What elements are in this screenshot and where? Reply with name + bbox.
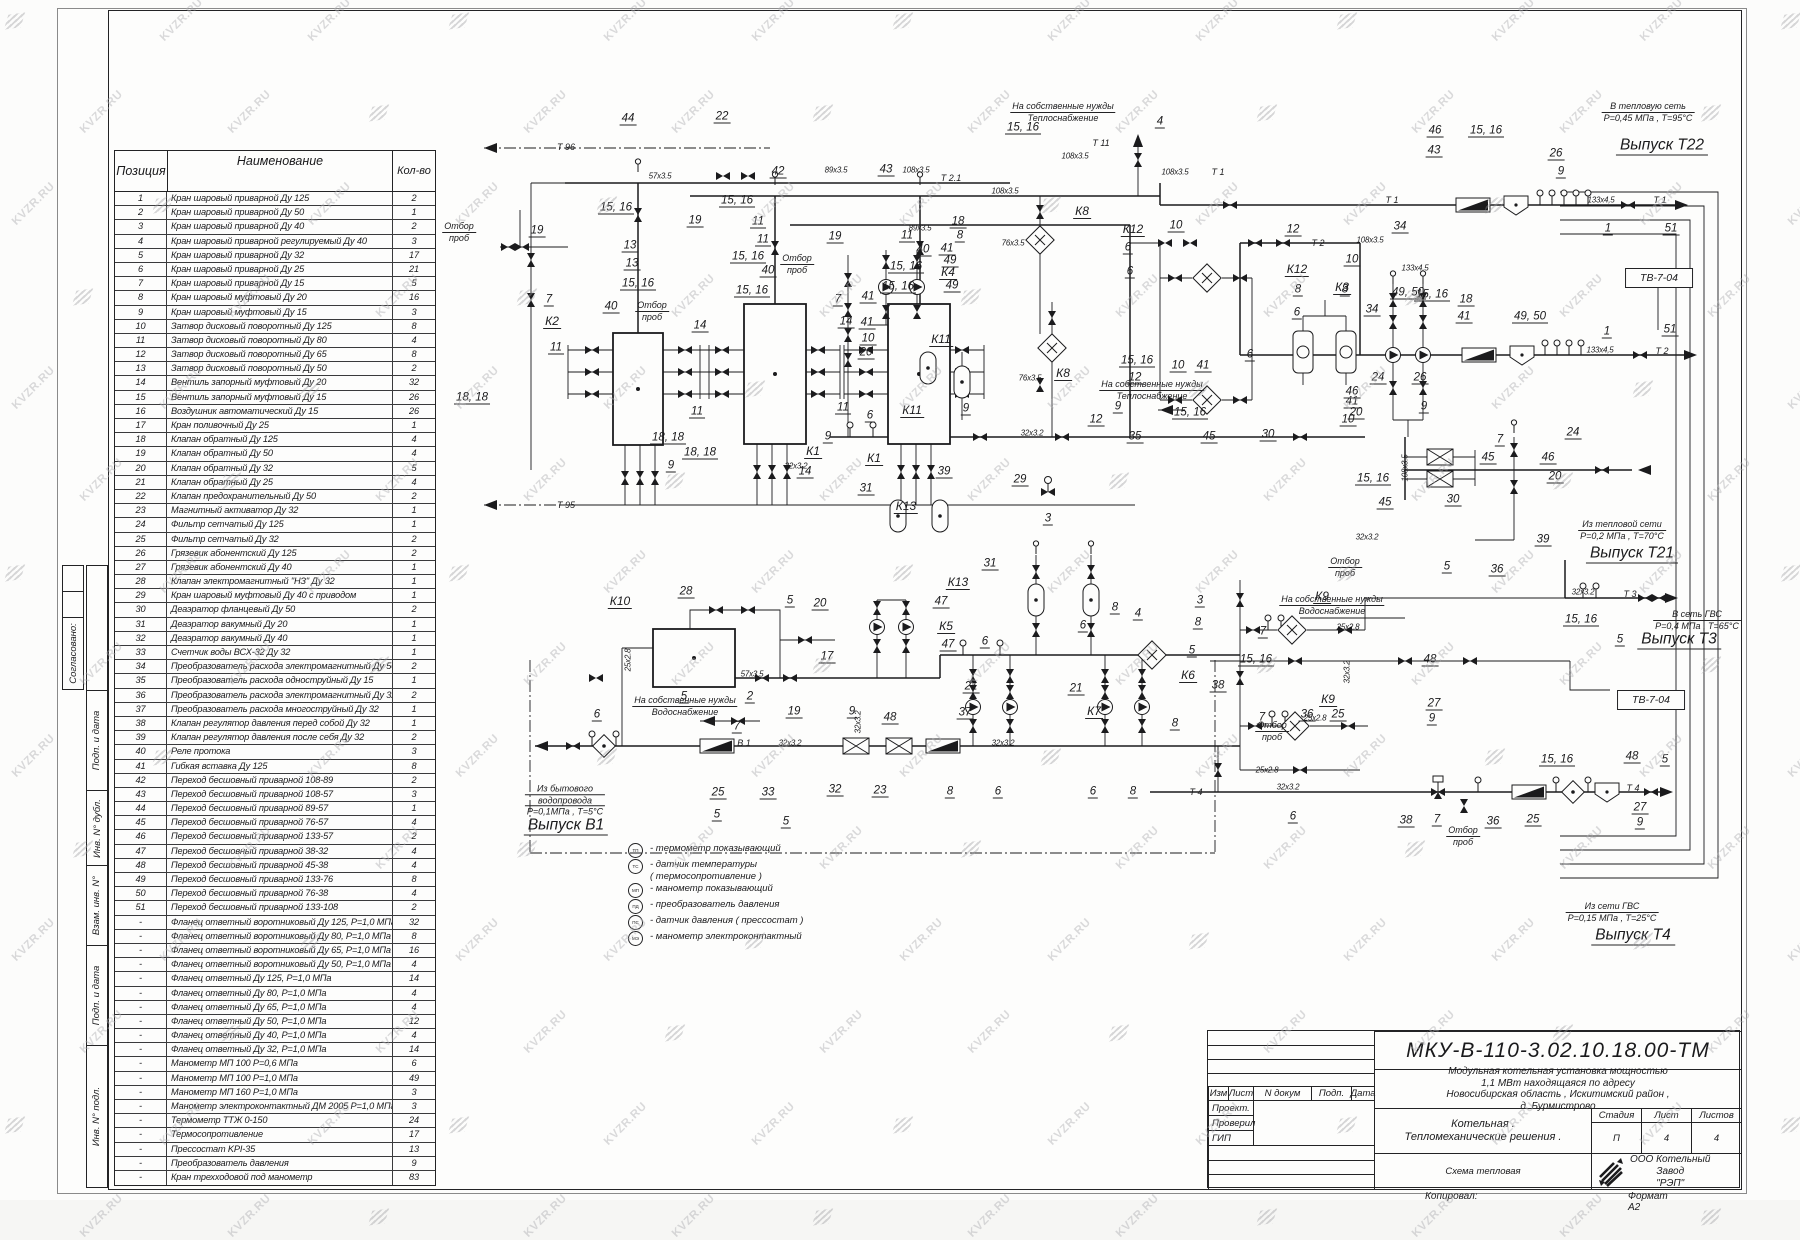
cap-symbol: [890, 500, 906, 532]
table-cell-qty: 16: [393, 291, 435, 304]
table-cell-pos: -: [115, 972, 167, 985]
table-cell-name: Клапан обратный Ду 50: [167, 447, 393, 460]
table-cell-pos: 28: [115, 575, 167, 588]
col-izm: Изм: [1208, 1086, 1228, 1100]
table-cell-name: Клапан регулятор давления перед собой Ду…: [167, 717, 393, 730]
table-cell-name: Переход бесшовный приварной 133-76: [167, 873, 393, 886]
table-row: 20Клапан обратный Ду 325: [115, 462, 435, 476]
parts-table: Позиция Наименование Кол-во 1Кран шаровы…: [114, 150, 436, 1186]
table-cell-pos: 26: [115, 547, 167, 560]
vlv-symbol: [678, 390, 692, 398]
vlv-symbol: [1419, 293, 1427, 307]
inst-symbol: [997, 640, 1003, 655]
inst-symbol: [589, 731, 595, 746]
vlv-symbol: [716, 172, 730, 180]
vlv-symbol: [1341, 722, 1355, 730]
table-cell-pos: 34: [115, 660, 167, 673]
table-row: 21Клапан обратный Ду 254: [115, 476, 435, 490]
table-cell-name: Кран шаровый приварной Ду 25: [167, 263, 393, 276]
inst-symbol: [1580, 583, 1586, 598]
table-row: -Термосопротивление17: [115, 1128, 435, 1142]
table-row: -Фланец ответный воротниковый Ду 125, Р=…: [115, 916, 435, 930]
vlv-symbol: [844, 303, 852, 317]
table-cell-qty: 3: [393, 235, 435, 248]
table-cell-pos: 22: [115, 490, 167, 503]
table-cell-pos: 9: [115, 306, 167, 319]
vlv-symbol: [585, 346, 599, 354]
vlv-symbol: [755, 674, 769, 682]
legend-text: - манометр показывающий: [650, 883, 773, 895]
table-cell-qty: 2: [393, 830, 435, 843]
table-cell-qty: 3: [393, 1100, 435, 1113]
table-cell-qty: 4: [393, 1029, 435, 1042]
vlv-symbol: [1006, 669, 1014, 683]
table-cell-qty: 3: [393, 306, 435, 319]
sidebar-agreed: Согласовано:: [62, 617, 84, 690]
table-cell-name: Переход бесшовный приварной 76-38: [167, 887, 393, 900]
company-name: ООО Котельный Завод "РЭП": [1630, 1154, 1710, 1190]
rectX-symbol: [843, 738, 869, 754]
table-cell-qty: 6: [393, 1057, 435, 1070]
table-cell-qty: 4: [393, 958, 435, 971]
table-cell-name: Фланец ответный Ду 32, Р=1,0 МПа: [167, 1043, 393, 1056]
table-cell-pos: 10: [115, 320, 167, 333]
watermark-logo-icon: [368, 1208, 389, 1225]
table-cell-name: Кран шаровый муфтовый Ду 40 с приводом: [167, 589, 393, 602]
table-cell-pos: -: [115, 944, 167, 957]
vlv-symbol: [589, 674, 603, 682]
table-cell-qty: 2: [393, 689, 435, 702]
arr-symbol: [1684, 350, 1697, 360]
secondary-pipes: [500, 140, 1718, 878]
table-cell-qty: 4: [393, 433, 435, 446]
table-cell-name: Затвор дисковый поворотный Ду 65: [167, 348, 393, 361]
table-row: 48Переход бесшовный приварной 45-384: [115, 859, 435, 873]
table-cell-name: Затвор дисковый поворотный Ду 50: [167, 362, 393, 375]
vlv-symbol: [501, 243, 515, 251]
vlv-symbol: [969, 719, 977, 733]
sheets-label: Листов: [1691, 1108, 1741, 1122]
legend-text: - датчик давления ( прессостат ): [650, 915, 803, 927]
table-cell-name: Грязевик абонентский Ду 40: [167, 561, 393, 574]
legend-item: ТП- термометр показывающий: [628, 843, 803, 858]
pent-symbol: [1510, 346, 1534, 365]
arr-symbol: [702, 716, 715, 726]
table-cell-name: Фильтр сетчатый Ду 125: [167, 518, 393, 531]
header-position: Позиция: [115, 151, 168, 191]
table-cell-name: Деаэратор фланцевый Ду 50: [167, 603, 393, 616]
table-cell-pos: 47: [115, 845, 167, 858]
vlv-symbol: [1032, 623, 1040, 637]
inst-symbol: [1566, 340, 1572, 355]
table-cell-qty: 2: [393, 901, 435, 914]
table-cell-name: Гибкая вставка Ду 125: [167, 760, 393, 773]
inst-symbol: [1549, 190, 1555, 205]
vlv-symbol: [811, 390, 825, 398]
table-cell-pos: 6: [115, 263, 167, 276]
table-cell-name: Фланец ответный Ду 40, Р=1,0 МПа: [167, 1029, 393, 1042]
table-cell-pos: -: [115, 1015, 167, 1028]
vlv-symbol: [1652, 594, 1666, 602]
table-cell-qty: 2: [393, 774, 435, 787]
tank12-symbol: [1293, 331, 1313, 373]
cap-symbol: [1028, 584, 1044, 616]
inst-symbol: [1554, 340, 1560, 355]
vlv-symbol: [715, 346, 729, 354]
vent-symbol: [1511, 420, 1516, 433]
table-cell-qty: 4: [393, 887, 435, 900]
table-cell-pos: 13: [115, 362, 167, 375]
legend-item: МЭ- манометр электроконтактный: [628, 931, 803, 946]
vent-symbol: [1033, 541, 1038, 554]
role-checked: Проверил: [1208, 1115, 1253, 1130]
vlv-symbol: [1288, 657, 1302, 665]
table-cell-pos: 35: [115, 674, 167, 687]
cap-symbol: [954, 366, 970, 398]
grid-line: [1208, 1160, 1374, 1161]
table-cell-name: Преобразователь расхода одноструйный Ду …: [167, 674, 393, 687]
inst-symbol: [960, 640, 966, 655]
table-cell-name: Манометр электроконтактный ДМ 2005 Р=1,0…: [167, 1100, 393, 1113]
vlv-symbol: [1293, 433, 1307, 441]
table-cell-name: Манометр МП 100 Р=0,6 МПа: [167, 1057, 393, 1070]
table-row: 50Переход бесшовный приварной 76-384: [115, 887, 435, 901]
table-cell-pos: 41: [115, 760, 167, 773]
table-row: 45Переход бесшовный приварной 76-574: [115, 816, 435, 830]
vlv-symbol: [902, 601, 910, 615]
table-cell-pos: 8: [115, 291, 167, 304]
table-cell-pos: 3: [115, 220, 167, 233]
table-cell-pos: 45: [115, 816, 167, 829]
pump-symbol: [1003, 700, 1018, 715]
table-cell-qty: 14: [393, 1043, 435, 1056]
table-cell-pos: 17: [115, 419, 167, 432]
rectX-symbol: [1427, 449, 1453, 465]
hx-symbol: [1193, 386, 1221, 414]
legend-text: - преобразователь давления: [650, 899, 780, 911]
table-cell-name: Фланец ответный Ду 80, Р=1,0 МПа: [167, 987, 393, 1000]
table-cell-name: Кран шаровый приварной Ду 15: [167, 277, 393, 290]
table-cell-pos: 48: [115, 859, 167, 872]
table-cell-name: Преобразователь расхода электромагнитный…: [167, 689, 393, 702]
vlv-symbol: [1248, 239, 1262, 247]
tank12-symbol: [1336, 331, 1356, 373]
table-row: 37Преобразователь расхода многоструйный …: [115, 703, 435, 717]
table-cell-qty: 4: [393, 816, 435, 829]
table-row: 16Воздушник автоматический Ду 1526: [115, 405, 435, 419]
equipment-symbols: [484, 134, 1697, 813]
inst-symbol: [1553, 777, 1559, 792]
table-cell-qty: 2: [393, 547, 435, 560]
flt-symbol: [1456, 198, 1490, 212]
vlv-symbol: [969, 669, 977, 683]
cap-symbol: [1083, 584, 1099, 616]
table-cell-pos: 24: [115, 518, 167, 531]
table-cell-qty: 1: [393, 518, 435, 531]
inst-symbol: [613, 731, 619, 746]
table-cell-name: Кран поливочный Ду 25: [167, 419, 393, 432]
table-cell-name: Кран шаровый приварной регулируемый Ду 4…: [167, 235, 393, 248]
vlv-symbol: [1168, 396, 1182, 404]
header-name: Наименование: [168, 151, 393, 191]
table-cell-name: Манометр МП 160 Р=1,0 МПа: [167, 1086, 393, 1099]
table-cell-qty: 4: [393, 845, 435, 858]
table-row: -Кран трехходовой под манометр83: [115, 1171, 435, 1185]
vlv-symbol: [1134, 153, 1142, 167]
vlv-symbol: [1338, 626, 1352, 634]
inst-symbol: [1561, 190, 1567, 205]
vlv-symbol: [1236, 593, 1244, 607]
vlv-symbol: [678, 368, 692, 376]
vlv-symbol: [902, 639, 910, 653]
vlv-symbol: [1101, 669, 1109, 683]
col-podp: Подп.: [1311, 1086, 1351, 1100]
pump-symbol: [1386, 348, 1401, 363]
vlv-symbol: [741, 172, 755, 180]
arr-symbol: [1660, 787, 1673, 797]
table-cell-qty: 2: [393, 362, 435, 375]
table-row: 3Кран шаровый приварной Ду 402: [115, 220, 435, 234]
table-row: 27Грязевик абонентский Ду 401: [115, 561, 435, 575]
table-cell-qty: 1: [393, 674, 435, 687]
vlv-symbol: [634, 208, 642, 222]
role-gip: ГИП: [1208, 1130, 1253, 1145]
table-cell-name: Переход бесшовный приварной 133-108: [167, 901, 393, 914]
table-row: 17Кран поливочный Ду 251: [115, 419, 435, 433]
table-cell-name: Переход бесшовный приварной 38-32: [167, 845, 393, 858]
cap-symbol: [932, 500, 948, 532]
table-row: 13Затвор дисковый поворотный Ду 502: [115, 362, 435, 376]
vent-symbol: [1088, 541, 1093, 554]
inst-symbol: [1593, 583, 1599, 598]
pent-symbol: [1595, 783, 1619, 802]
sign-area: [1253, 1100, 1374, 1145]
table-cell-name: Фланец ответный Ду 50, Р=1,0 МПа: [167, 1015, 393, 1028]
legend: ТП- термометр показывающийТС- датчик тем…: [628, 843, 803, 947]
table-cell-pos: 16: [115, 405, 167, 418]
vent-symbol: [1420, 271, 1425, 284]
vlv-symbol: [1101, 719, 1109, 733]
table-cell-qty: 1: [393, 561, 435, 574]
table-cell-qty: 83: [393, 1171, 435, 1185]
table-row: 6Кран шаровый приварной Ду 2521: [115, 263, 435, 277]
legend-text: - термометр показывающий: [650, 843, 781, 855]
vlv-symbol: [1246, 626, 1260, 634]
vlv-symbol: [1510, 480, 1518, 494]
vlv-symbol: [1223, 201, 1237, 209]
table-row: -Фланец ответный Ду 80, Р=1,0 МПа4: [115, 987, 435, 1001]
vlv-symbol: [844, 273, 852, 287]
rectX-symbol: [886, 738, 912, 754]
table-cell-qty: 2: [393, 192, 435, 205]
table-cell-qty: 2: [393, 533, 435, 546]
sidebar-col-vzam: Взам. инв. N°: [86, 865, 108, 946]
table-cell-qty: 3: [393, 788, 435, 801]
table-cell-qty: 1: [393, 632, 435, 645]
table-cell-name: Термосопротивление: [167, 1128, 393, 1141]
sidebar-empty-1: [62, 565, 84, 592]
vlv-symbol: [651, 471, 659, 485]
vlv-symbol: [1621, 201, 1635, 209]
table-row: 11Затвор дисковый поворотный Ду 804: [115, 334, 435, 348]
table-cell-name: Клапан обратный Ду 25: [167, 476, 393, 489]
table-row: 33Счетчик воды ВСХ-32 Ду 321: [115, 646, 435, 660]
vlv-symbol: [1138, 719, 1146, 733]
table-cell-pos: 27: [115, 561, 167, 574]
vlv-symbol: [969, 685, 977, 699]
flt-symbol: [700, 739, 734, 753]
vlv-symbol: [515, 243, 529, 251]
table-cell-name: Прессостат KPI-35: [167, 1143, 393, 1156]
col-ndoc: N докум: [1253, 1086, 1311, 1100]
table-row: 18Клапан обратный Ду 1254: [115, 433, 435, 447]
table-row: 40Реле протока3: [115, 745, 435, 759]
table-cell-qty: 2: [393, 220, 435, 233]
table-cell-name: Фланец ответный воротниковый Ду 50, Р=1,…: [167, 958, 393, 971]
table-cell-pos: -: [115, 1029, 167, 1042]
table-row: 39Клапан регулятор давления после себя Д…: [115, 731, 435, 745]
flt-symbol: [1462, 348, 1496, 362]
vlv-symbol: [1036, 378, 1044, 392]
table-row: -Фланец ответный Ду 125, Р=1,0 МПа14: [115, 972, 435, 986]
hx-symbol: [1026, 226, 1054, 254]
table-row: 12Затвор дисковый поворотный Ду 658: [115, 348, 435, 362]
table-cell-qty: 9: [393, 1157, 435, 1170]
sidebar-col-podp-2: Подп. и дата: [86, 945, 108, 1046]
vlv-symbol: [1233, 396, 1247, 404]
vlv-symbol: [1048, 311, 1056, 325]
rectX-symbol: [1427, 471, 1453, 487]
table-row: 38Клапан регулятор давления перед собой …: [115, 717, 435, 731]
pent-symbol: [1504, 196, 1528, 215]
table-cell-pos: -: [115, 1143, 167, 1156]
table-row: 2Кран шаровый приварной Ду 501: [115, 206, 435, 220]
table-cell-name: Реле протока: [167, 745, 393, 758]
vlv-symbol: [927, 465, 935, 479]
table-row: -Фланец ответный Ду 40, Р=1,0 МПа4: [115, 1029, 435, 1043]
table-cell-pos: 40: [115, 745, 167, 758]
table-cell-name: Кран трехходовой под манометр: [167, 1171, 393, 1185]
table-row: 9Кран шаровый муфтовый Ду 153: [115, 306, 435, 320]
table-cell-pos: 2: [115, 206, 167, 219]
table-cell-name: Воздушник автоматический Ду 15: [167, 405, 393, 418]
table-cell-qty: 26: [393, 391, 435, 404]
table-cell-qty: 12: [393, 1015, 435, 1028]
table-row: -Манометр МП 160 Р=1,0 МПа3: [115, 1086, 435, 1100]
vlv-symbol: [783, 674, 797, 682]
watermark-logo-icon: [812, 1208, 833, 1225]
table-cell-name: Преобразователь давления: [167, 1157, 393, 1170]
col-list: Лист: [1228, 1086, 1253, 1100]
drawing-sheet: Позиция Наименование Кол-во 1Кран шаровы…: [0, 0, 1800, 1200]
table-row: 29Кран шаровый муфтовый Ду 40 с приводом…: [115, 589, 435, 603]
table-cell-qty: 2: [393, 490, 435, 503]
table-cell-qty: 4: [393, 1001, 435, 1014]
vlv-symbol: [1389, 381, 1397, 395]
table-row: 23Магнитный активатор Ду 321: [115, 504, 435, 518]
table-cell-pos: 29: [115, 589, 167, 602]
table-cell-qty: 5: [393, 277, 435, 290]
inst-symbol: [1475, 777, 1481, 792]
vlv-symbol: [1168, 274, 1182, 282]
parts-table-body: 1Кран шаровый приварной Ду 12522Кран шар…: [114, 192, 436, 1186]
vlv-symbol: [1006, 685, 1014, 699]
table-row: -Фланец ответный воротниковый Ду 50, Р=1…: [115, 958, 435, 972]
table-cell-qty: 8: [393, 348, 435, 361]
table-cell-pos: -: [115, 1128, 167, 1141]
sidebar-label: Подп. и дата: [92, 711, 103, 770]
vlv-symbol: [731, 717, 745, 725]
title-block: Изм Лист N докум Подп. Дата Проект. Пров…: [1207, 1030, 1740, 1188]
table-cell-name: Магнитный активатор Ду 32: [167, 504, 393, 517]
table-row: -Прессостат KPI-3513: [115, 1143, 435, 1157]
table-cell-qty: 4: [393, 334, 435, 347]
table-row: -Манометр электроконтактный ДМ 2005 Р=1,…: [115, 1100, 435, 1114]
table-cell-name: Счетчик воды ВСХ-32 Ду 32: [167, 646, 393, 659]
table-row: 49Переход бесшовный приварной 133-768: [115, 873, 435, 887]
table-cell-qty: 21: [393, 263, 435, 276]
instrument-symbol-icon: МЭ: [628, 931, 643, 946]
sheet-value: 4: [1641, 1122, 1691, 1153]
vlv-symbol: [844, 353, 852, 367]
table-row: 41Гибкая вставка Ду 1258: [115, 760, 435, 774]
table-cell-name: Фланец ответный Ду 65, Р=1,0 МПа: [167, 1001, 393, 1014]
table-cell-pos: 43: [115, 788, 167, 801]
pump-symbol: [910, 280, 925, 295]
table-cell-pos: 11: [115, 334, 167, 347]
table-cell-pos: 1: [115, 192, 167, 205]
arr-symbol: [1675, 200, 1688, 210]
vlv-symbol: [1006, 719, 1014, 733]
table-cell-pos: 30: [115, 603, 167, 616]
cap-symbol: [920, 352, 936, 384]
vlv-symbol: [1510, 443, 1518, 457]
vent-symbol: [1390, 271, 1395, 284]
table-cell-pos: -: [115, 1057, 167, 1070]
format-label: Формат А2: [1628, 1191, 1668, 1213]
sidebar-agreed-label: Согласовано:: [68, 623, 79, 684]
header-qty: Кол-во: [393, 151, 435, 191]
vlv-symbol: [621, 471, 629, 485]
vlv-symbol: [1644, 788, 1658, 796]
table-cell-name: Термометр ТТЖ 0-150: [167, 1114, 393, 1127]
sheets-value: 4: [1691, 1122, 1741, 1153]
grid-line: [1208, 1059, 1374, 1060]
table-row: 22Клапан предохранительный Ду 502: [115, 490, 435, 504]
vlv-symbol: [783, 465, 791, 479]
sidebar-label: Инв. N° дубл.: [92, 799, 103, 858]
vlv-symbol: [1236, 671, 1244, 685]
vlv-symbol: [859, 390, 873, 398]
vlv-symbol: [1248, 722, 1262, 730]
vlv-symbol: [1101, 685, 1109, 699]
table-cell-qty: 1: [393, 703, 435, 716]
table-row: -Фланец ответный Ду 32, Р=1,0 МПа14: [115, 1043, 435, 1057]
watermark-logo-icon: [1256, 1208, 1277, 1225]
vlv-symbol: [1032, 565, 1040, 579]
table-cell-qty: 4: [393, 987, 435, 1000]
table-cell-pos: 18: [115, 433, 167, 446]
table-cell-pos: 19: [115, 447, 167, 460]
table-cell-name: Деаэратор вакумный Ду 20: [167, 618, 393, 631]
act-symbol: [1041, 477, 1055, 497]
vlv-symbol: [527, 293, 535, 307]
vlv-symbol: [1398, 657, 1412, 665]
vlv-symbol: [798, 636, 812, 644]
pump-symbol: [870, 620, 885, 635]
vlv-symbol: [1087, 565, 1095, 579]
table-cell-name: Кран шаровый приварной Ду 40: [167, 220, 393, 233]
